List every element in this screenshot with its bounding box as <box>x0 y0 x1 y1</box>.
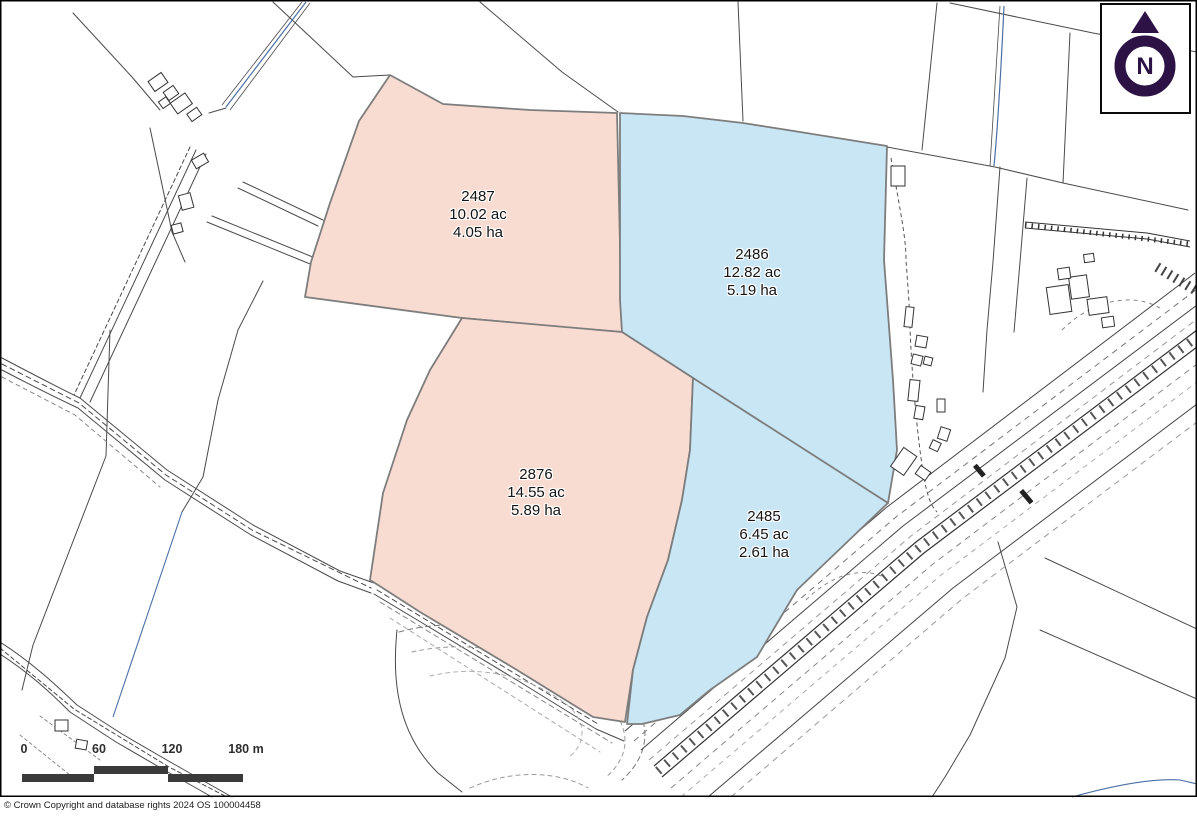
parcel-acres: 10.02 ac <box>449 206 507 224</box>
parcel-label-2876: 2876 14.55 ac 5.89 ha <box>507 466 565 520</box>
north-triangle-icon <box>1131 11 1159 33</box>
north-arrow-icon: N <box>1102 5 1189 112</box>
scale-segment-1 <box>22 774 94 782</box>
scale-segment-2 <box>94 766 168 774</box>
parcel-hectares: 5.19 ha <box>723 282 781 300</box>
parcel-acres: 14.55 ac <box>507 484 565 502</box>
map-canvas[interactable] <box>0 0 1197 817</box>
parcel-acres: 6.45 ac <box>739 526 789 544</box>
scale-tick-120: 120 <box>162 742 183 756</box>
scale-tick-180m: 180 m <box>228 742 263 756</box>
map-viewport[interactable]: 2487 10.02 ac 4.05 ha 2486 12.82 ac 5.19… <box>0 0 1197 817</box>
parcel-id: 2876 <box>507 466 565 484</box>
parcel-label-2485: 2485 6.45 ac 2.61 ha <box>739 508 789 562</box>
scale-segment-3 <box>168 774 243 782</box>
parcel-label-2486: 2486 12.82 ac 5.19 ha <box>723 246 781 300</box>
parcel-id: 2487 <box>449 188 507 206</box>
parcel-acres: 12.82 ac <box>723 264 781 282</box>
parcel-label-2487: 2487 10.02 ac 4.05 ha <box>449 188 507 242</box>
scale-tick-60: 60 <box>92 742 106 756</box>
parcel-hectares: 4.05 ha <box>449 224 507 242</box>
parcel-id: 2485 <box>739 508 789 526</box>
north-letter: N <box>1136 53 1153 80</box>
copyright-notice: © Crown Copyright and database rights 20… <box>4 800 261 811</box>
parcel-hectares: 5.89 ha <box>507 502 565 520</box>
scale-bar: 0 60 120 180 m <box>8 742 278 794</box>
parcel-hectares: 2.61 ha <box>739 544 789 562</box>
scale-tick-0: 0 <box>21 742 28 756</box>
north-arrow-box: N <box>1100 3 1191 114</box>
parcel-id: 2486 <box>723 246 781 264</box>
